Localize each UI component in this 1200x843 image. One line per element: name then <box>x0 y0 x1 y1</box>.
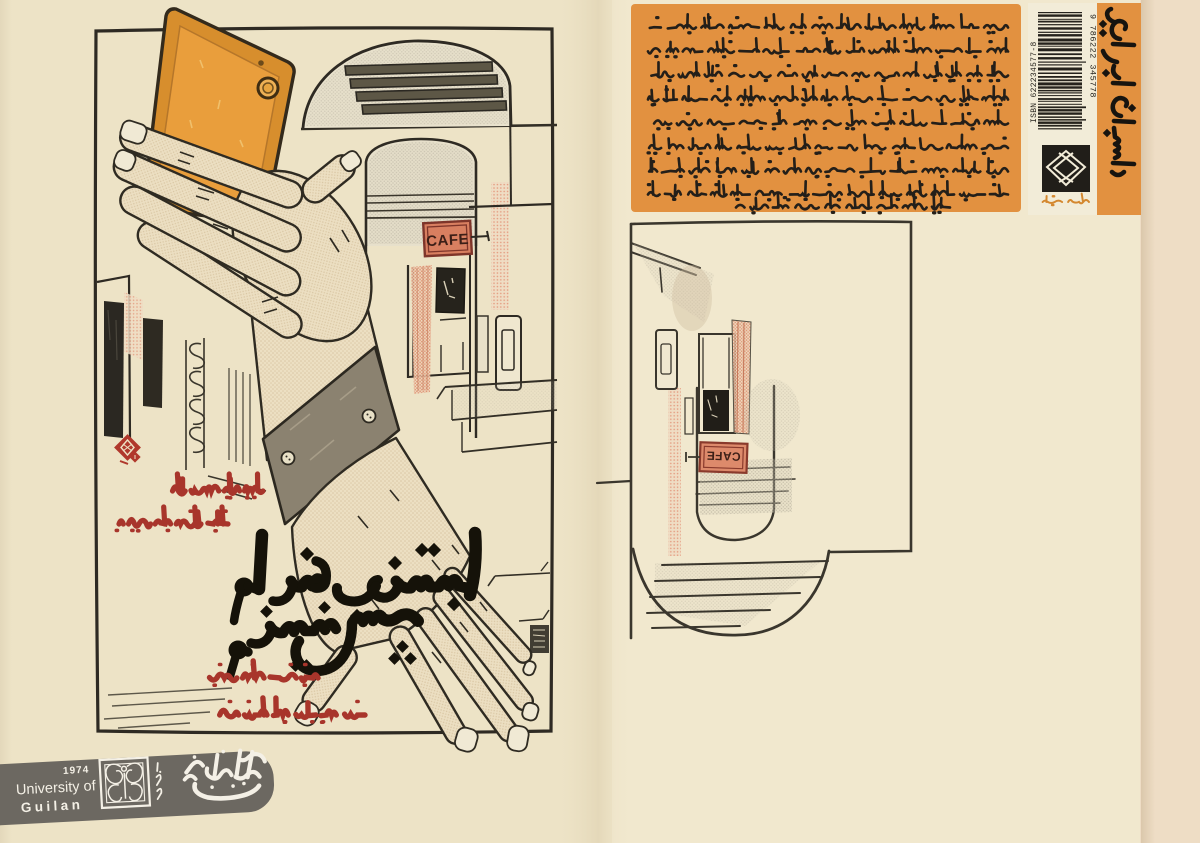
svg-text:CAFE: CAFE <box>426 231 470 250</box>
svg-text:1974: 1974 <box>63 765 90 777</box>
svg-text:ISBN 622234577-8: ISBN 622234577-8 <box>1030 41 1039 123</box>
svg-text:9 786222 345778: 9 786222 345778 <box>1088 14 1098 98</box>
svg-text:CAFE: CAFE <box>706 448 741 463</box>
